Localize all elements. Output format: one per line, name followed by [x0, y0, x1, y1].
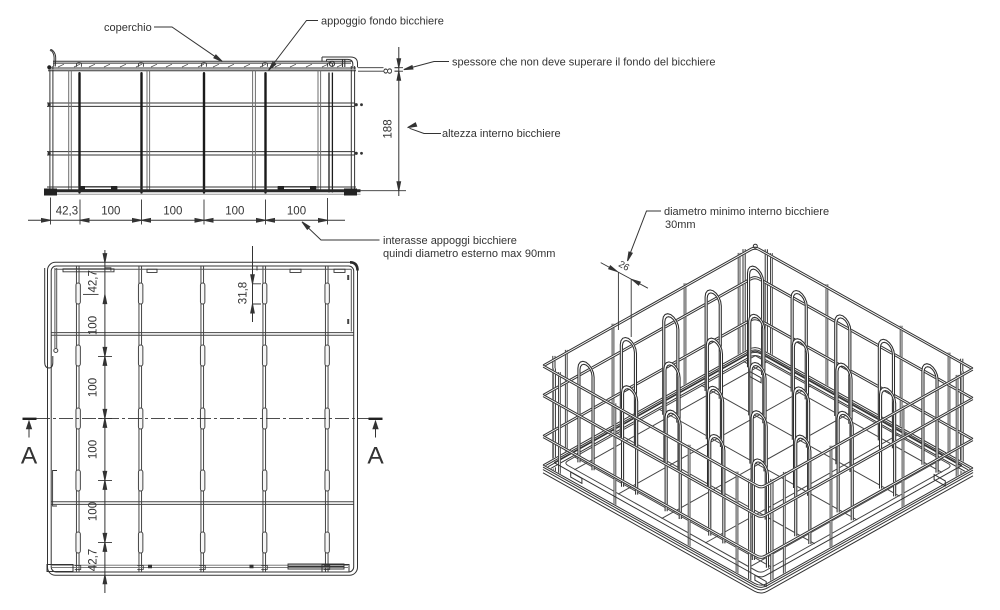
svg-text:42,7: 42,7 — [88, 549, 100, 571]
svg-text:100: 100 — [88, 316, 100, 335]
svg-text:100: 100 — [163, 206, 182, 218]
svg-text:100: 100 — [101, 206, 120, 218]
svg-text:A: A — [21, 443, 38, 470]
svg-text:spessore che non deve superare: spessore che non deve superare il fondo … — [452, 57, 716, 69]
svg-text:diametro minimo interno bicchi: diametro minimo interno bicchiere — [664, 206, 829, 218]
svg-text:42,3: 42,3 — [56, 206, 78, 218]
svg-text:altezza interno bicchiere: altezza interno bicchiere — [442, 128, 561, 140]
svg-text:appoggio fondo bicchiere: appoggio fondo bicchiere — [321, 16, 444, 28]
svg-text:30mm: 30mm — [665, 219, 696, 231]
svg-text:quindi diametro esterno max 90: quindi diametro esterno max 90mm — [383, 248, 555, 260]
svg-text:A: A — [367, 443, 384, 470]
svg-text:100: 100 — [225, 206, 244, 218]
svg-text:coperchio: coperchio — [104, 22, 152, 34]
svg-text:100: 100 — [287, 206, 306, 218]
svg-text:8: 8 — [383, 68, 395, 74]
svg-text:31,8: 31,8 — [238, 282, 250, 304]
svg-text:42,7: 42,7 — [88, 270, 100, 292]
svg-text:100: 100 — [88, 378, 100, 397]
svg-text:100: 100 — [88, 440, 100, 459]
svg-text:188: 188 — [383, 119, 395, 138]
svg-text:100: 100 — [88, 502, 100, 521]
svg-text:interasse appoggi bicchiere: interasse appoggi bicchiere — [383, 235, 517, 247]
